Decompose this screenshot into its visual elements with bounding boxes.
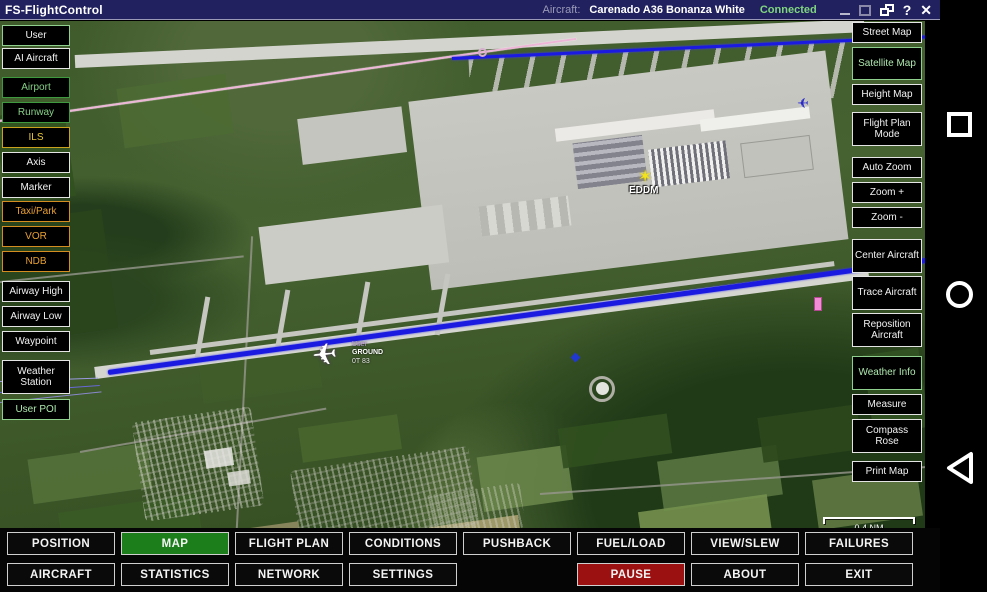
aircraft-tag-status: GROUND [352, 349, 383, 357]
field-patch [298, 414, 402, 463]
tab-view-slew[interactable]: VIEW/SLEW [691, 532, 799, 555]
android-nav-bar [940, 0, 987, 592]
restore-window-icon[interactable] [880, 4, 894, 16]
layer-toggle-ndb[interactable]: NDB [2, 251, 70, 272]
layer-toggle-marker[interactable]: Marker [2, 177, 70, 198]
map-control-street-map[interactable]: Street Map [852, 22, 922, 43]
layer-toggle-ils[interactable]: ILS [2, 127, 70, 148]
field-patch [558, 414, 672, 469]
tab-network[interactable]: NETWORK [235, 563, 343, 586]
map-control-height-map[interactable]: Height Map [852, 84, 922, 105]
home-icon[interactable] [946, 281, 973, 308]
back-triangle-icon[interactable] [943, 450, 977, 491]
tab-statistics[interactable]: STATISTICS [121, 563, 229, 586]
field-patch [229, 521, 301, 528]
tab-about[interactable]: ABOUT [691, 563, 799, 586]
layer-toggle-runway[interactable]: Runway [2, 102, 70, 123]
map-control-zoom-in[interactable]: Zoom + [852, 182, 922, 203]
map-control-trace-aircraft[interactable]: Trace Aircraft [852, 276, 922, 310]
tab-conditions[interactable]: CONDITIONS [349, 532, 457, 555]
bottom-tab-bar: POSITION MAP FLIGHT PLAN CONDITIONS PUSH… [0, 528, 940, 592]
map-control-reposition-aircraft[interactable]: Reposition Aircraft [852, 313, 922, 347]
map-control-auto-zoom[interactable]: Auto Zoom [852, 157, 922, 178]
layer-toggle-airport[interactable]: Airport [2, 77, 70, 98]
map-control-print-map[interactable]: Print Map [852, 461, 922, 482]
fs-flightcontrol-window: ✶ EDDM ✈ User GROUND 0T 83 ✈ 0.4 NM ©201… [0, 0, 987, 592]
map-control-measure[interactable]: Measure [852, 394, 922, 415]
apron-west [258, 205, 449, 285]
app-title: FS-FlightControl [0, 3, 103, 17]
map-control-satellite-map[interactable]: Satellite Map [852, 47, 922, 80]
tab-settings[interactable]: SETTINGS [349, 563, 457, 586]
map-control-compass-rose[interactable]: Compass Rose [852, 419, 922, 453]
airport-code-label: EDDM [629, 185, 658, 196]
aircraft-label: Aircraft: [543, 4, 581, 16]
taxiway-connector [195, 296, 211, 358]
aircraft-name: Carenado A36 Bonanza White [589, 4, 744, 16]
minimize-icon[interactable] [840, 13, 850, 15]
layer-toggle-weather-station[interactable]: Weather Station [2, 360, 70, 394]
tab-map[interactable]: MAP [121, 532, 229, 555]
connection-status: Connected [760, 4, 817, 16]
user-aircraft-icon[interactable]: ✈ [310, 337, 339, 374]
apron-north [297, 106, 407, 164]
industrial-roof [204, 447, 234, 469]
field-patch [116, 74, 233, 149]
close-button[interactable]: ✕ [920, 0, 932, 20]
tab-flight-plan[interactable]: FLIGHT PLAN [235, 532, 343, 555]
tab-pause[interactable]: PAUSE [577, 563, 685, 586]
field-patch [757, 404, 862, 462]
help-button[interactable]: ? [903, 0, 912, 20]
tab-pushback[interactable]: PUSHBACK [463, 532, 571, 555]
tab-fuel-load[interactable]: FUEL/LOAD [577, 532, 685, 555]
title-bar: FS-FlightControl Aircraft: Carenado A36 … [0, 0, 940, 20]
tab-position[interactable]: POSITION [7, 532, 115, 555]
tab-exit[interactable]: EXIT [805, 563, 913, 586]
town-area [132, 406, 265, 522]
layer-toggle-taxi-park[interactable]: Taxi/Park [2, 201, 70, 222]
layer-toggle-ai-aircraft[interactable]: AI Aircraft [2, 48, 70, 69]
layer-toggle-airway-low[interactable]: Airway Low [2, 306, 70, 327]
maximize-icon[interactable] [859, 5, 871, 16]
map-view[interactable]: ✶ EDDM ✈ User GROUND 0T 83 ✈ 0.4 NM ©201… [0, 21, 925, 528]
ils-marker [814, 297, 822, 311]
layer-toggle-axis[interactable]: Axis [2, 152, 70, 173]
field-patch [27, 443, 152, 504]
layer-toggle-vor[interactable]: VOR [2, 226, 70, 247]
airport-star-icon: ✶ [638, 167, 652, 187]
layer-toggle-user[interactable]: User [2, 25, 70, 46]
trace-start-marker [478, 48, 487, 57]
map-control-weather-info[interactable]: Weather Info [852, 356, 922, 390]
waypoint-marker [571, 353, 581, 363]
map-control-zoom-out[interactable]: Zoom - [852, 207, 922, 228]
map-control-center-aircraft[interactable]: Center Aircraft [852, 239, 922, 273]
tab-aircraft[interactable]: AIRCRAFT [7, 563, 115, 586]
layer-toggle-airway-high[interactable]: Airway High [2, 281, 70, 302]
round-tank [596, 382, 609, 395]
aircraft-tag-speed: 0T 83 [352, 358, 383, 366]
ai-aircraft-icon[interactable]: ✈ [797, 95, 809, 112]
map-control-flight-plan-mode[interactable]: Flight Plan Mode [852, 112, 922, 146]
tab-failures[interactable]: FAILURES [805, 532, 913, 555]
layer-toggle-user-poi[interactable]: User POI [2, 399, 70, 420]
layer-toggle-waypoint[interactable]: Waypoint [2, 331, 70, 352]
recent-apps-icon[interactable] [947, 112, 972, 137]
user-aircraft-tag: User GROUND 0T 83 [352, 341, 383, 366]
terminal-roofs [572, 135, 647, 189]
